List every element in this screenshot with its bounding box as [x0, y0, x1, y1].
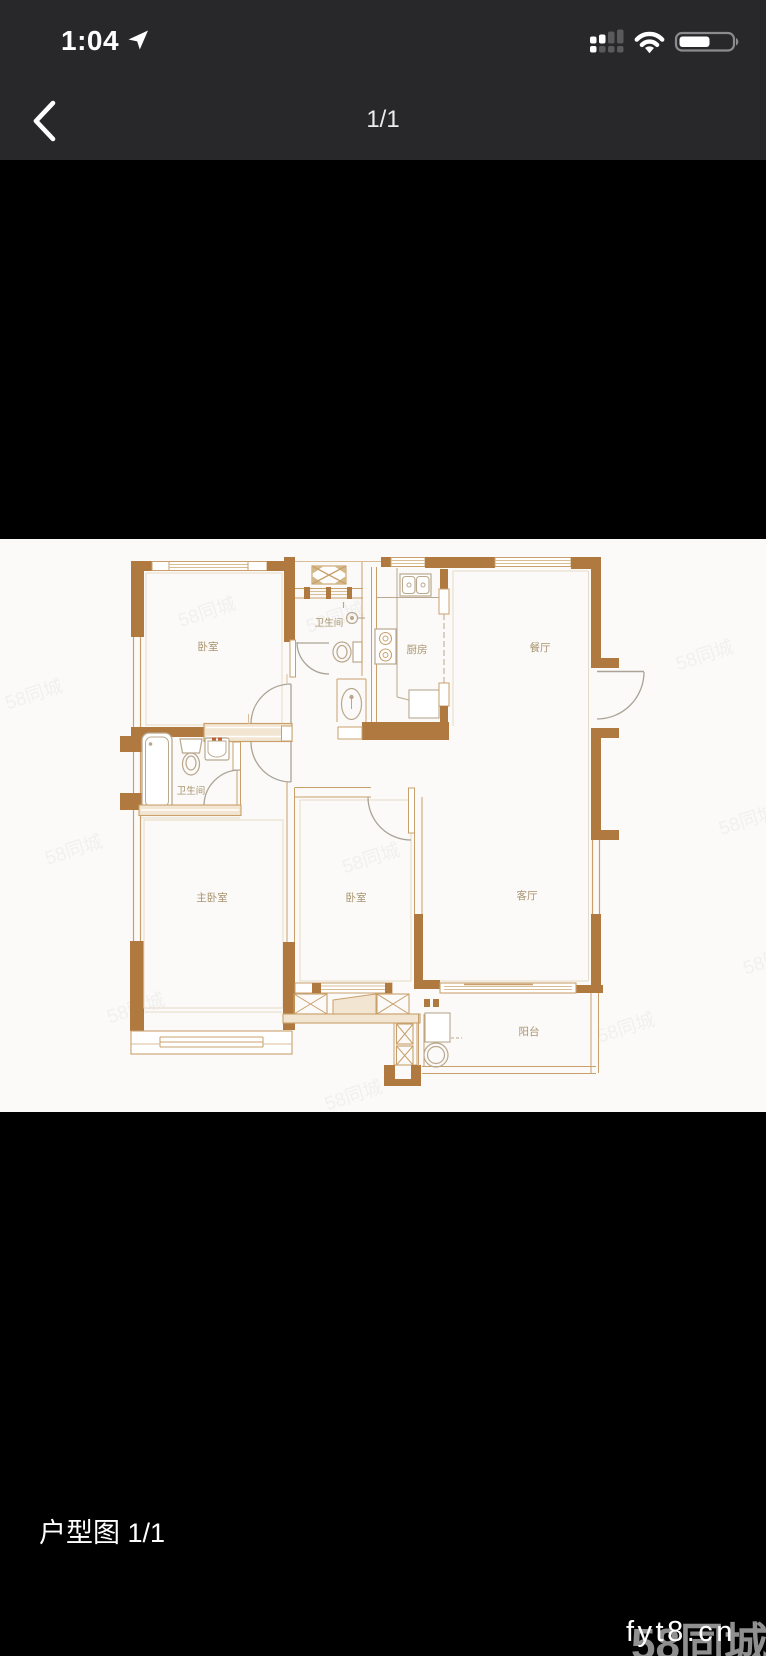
- svg-text:58同城: 58同城: [740, 940, 766, 979]
- svg-text:餐厅: 餐厅: [530, 641, 551, 654]
- svg-text:客厅: 客厅: [517, 889, 538, 902]
- svg-text:58同城: 58同城: [594, 1009, 657, 1048]
- svg-text:58同城: 58同城: [340, 839, 403, 878]
- svg-text:卫生间: 卫生间: [177, 785, 206, 797]
- svg-text:卫生间: 卫生间: [315, 617, 344, 629]
- svg-text:58同城: 58同城: [716, 801, 766, 840]
- svg-text:厨房: 厨房: [407, 643, 428, 656]
- svg-text:阳台: 阳台: [519, 1025, 540, 1038]
- svg-text:卧室: 卧室: [346, 891, 367, 904]
- svg-text:58同城: 58同城: [2, 675, 65, 714]
- svg-text:58同城: 58同城: [175, 593, 238, 632]
- svg-text:58同城: 58同城: [673, 636, 736, 675]
- svg-text:主卧室: 主卧室: [196, 891, 228, 904]
- svg-text:58同城: 58同城: [322, 1076, 385, 1112]
- svg-text:58同城: 58同城: [42, 830, 105, 869]
- svg-text:卧室: 卧室: [198, 640, 219, 653]
